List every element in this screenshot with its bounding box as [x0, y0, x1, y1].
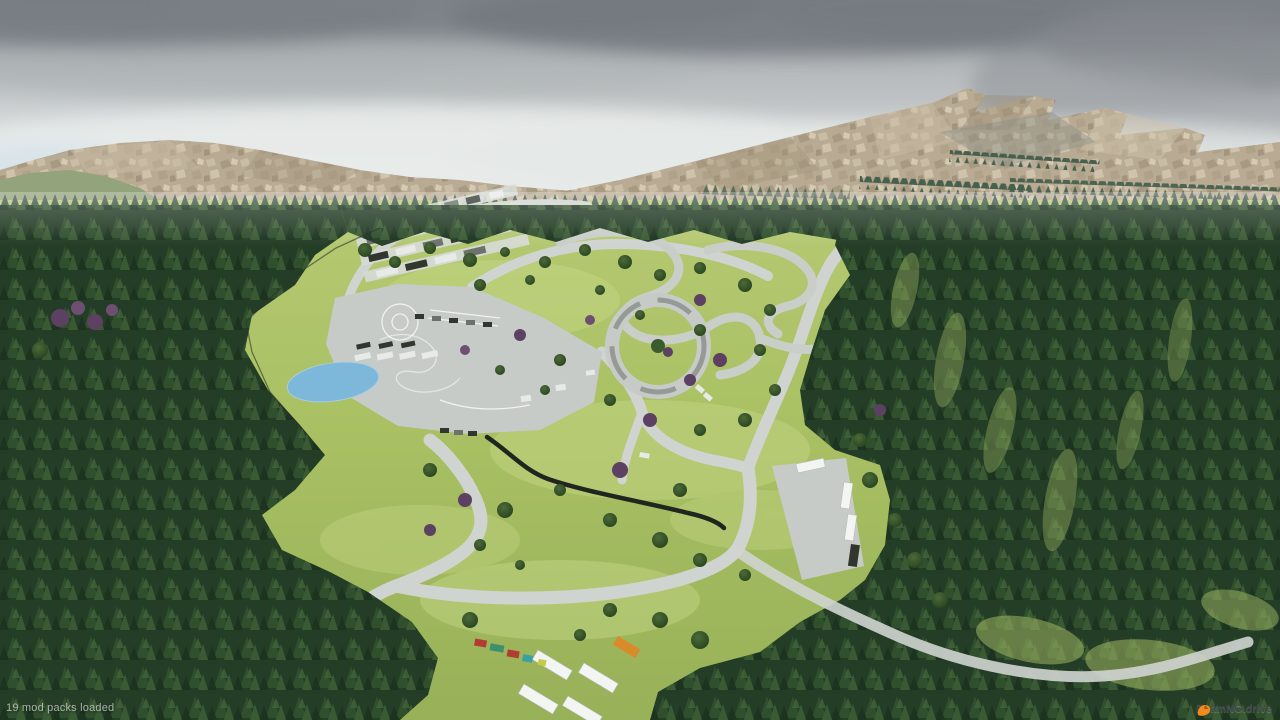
status-message: 19 mod packs loaded	[6, 702, 114, 714]
beamng-logo-icon	[1196, 703, 1212, 717]
distance-haze	[0, 192, 1280, 247]
scene-canvas	[0, 0, 1280, 720]
game-viewport[interactable]: 19 mod packs loaded BeamNG.drive	[0, 0, 1280, 720]
watermark: BeamNG.drive	[1196, 703, 1272, 715]
